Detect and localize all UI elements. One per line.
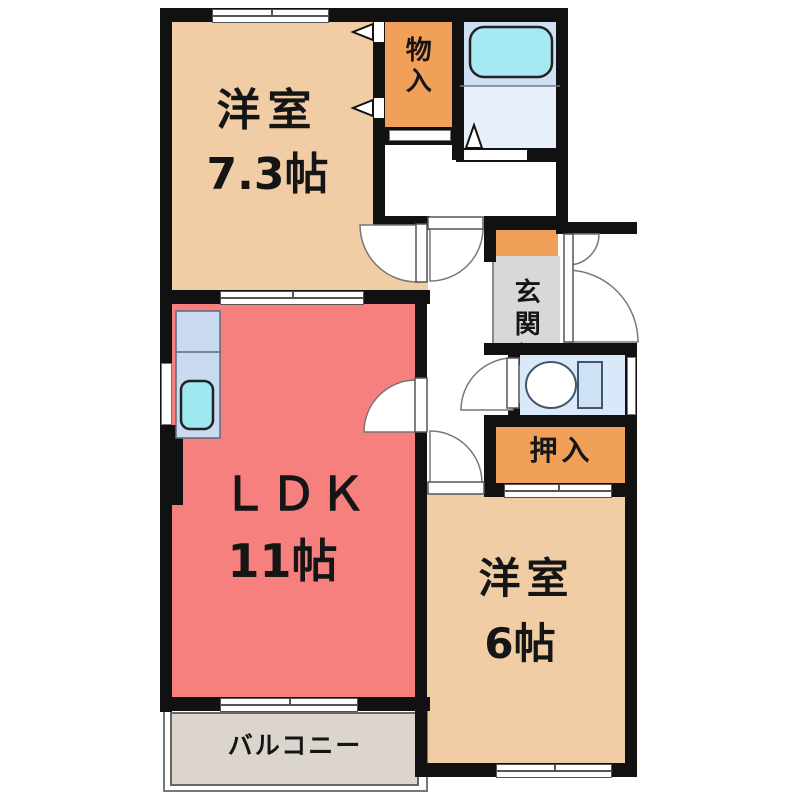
entrance-step-marker bbox=[504, 342, 522, 353]
label-western73-name: 洋室 bbox=[160, 88, 375, 134]
label-western73-size: 7.3帖 bbox=[150, 152, 385, 198]
storage-opening-marker-upper bbox=[353, 24, 373, 40]
label-western6-size: 6帖 bbox=[415, 622, 625, 666]
door-leaf-western73 bbox=[416, 224, 427, 282]
bathtub bbox=[460, 27, 560, 86]
label-balcony: バルコニー bbox=[175, 733, 415, 759]
label-closet: 押入 bbox=[495, 436, 628, 465]
label-western6-name: 洋室 bbox=[424, 557, 629, 601]
door-leaf-ldk bbox=[415, 378, 427, 432]
label-ldk-size: 11帖 bbox=[160, 537, 405, 585]
floorplan: 洋室 7.3帖 物入 玄関 押入 ＬＤＫ 11帖 洋室 6帖 バルコニー bbox=[0, 0, 800, 800]
label-ldk-name: ＬＤＫ bbox=[170, 470, 420, 518]
door-arc-ldk bbox=[364, 380, 416, 432]
toilet-fixture bbox=[526, 362, 602, 408]
front-door-arc-large bbox=[568, 270, 638, 342]
kitchen-sink bbox=[181, 381, 213, 429]
door-arc-western73 bbox=[360, 225, 417, 282]
symbols-layer bbox=[0, 0, 800, 800]
door-leaf-western6 bbox=[428, 482, 484, 494]
door-arc-toilet bbox=[461, 358, 513, 410]
kitchen-counter bbox=[176, 311, 220, 438]
label-entrance: 玄関 bbox=[511, 278, 538, 342]
door-leaf-toilet bbox=[507, 358, 519, 408]
door-leaf-washroom bbox=[428, 217, 483, 229]
door-arc-western6 bbox=[430, 431, 482, 483]
bath-door-marker bbox=[466, 125, 482, 148]
front-door-leaf bbox=[564, 234, 573, 342]
label-storage: 物入 bbox=[402, 36, 429, 98]
door-arc-washroom bbox=[430, 228, 483, 281]
